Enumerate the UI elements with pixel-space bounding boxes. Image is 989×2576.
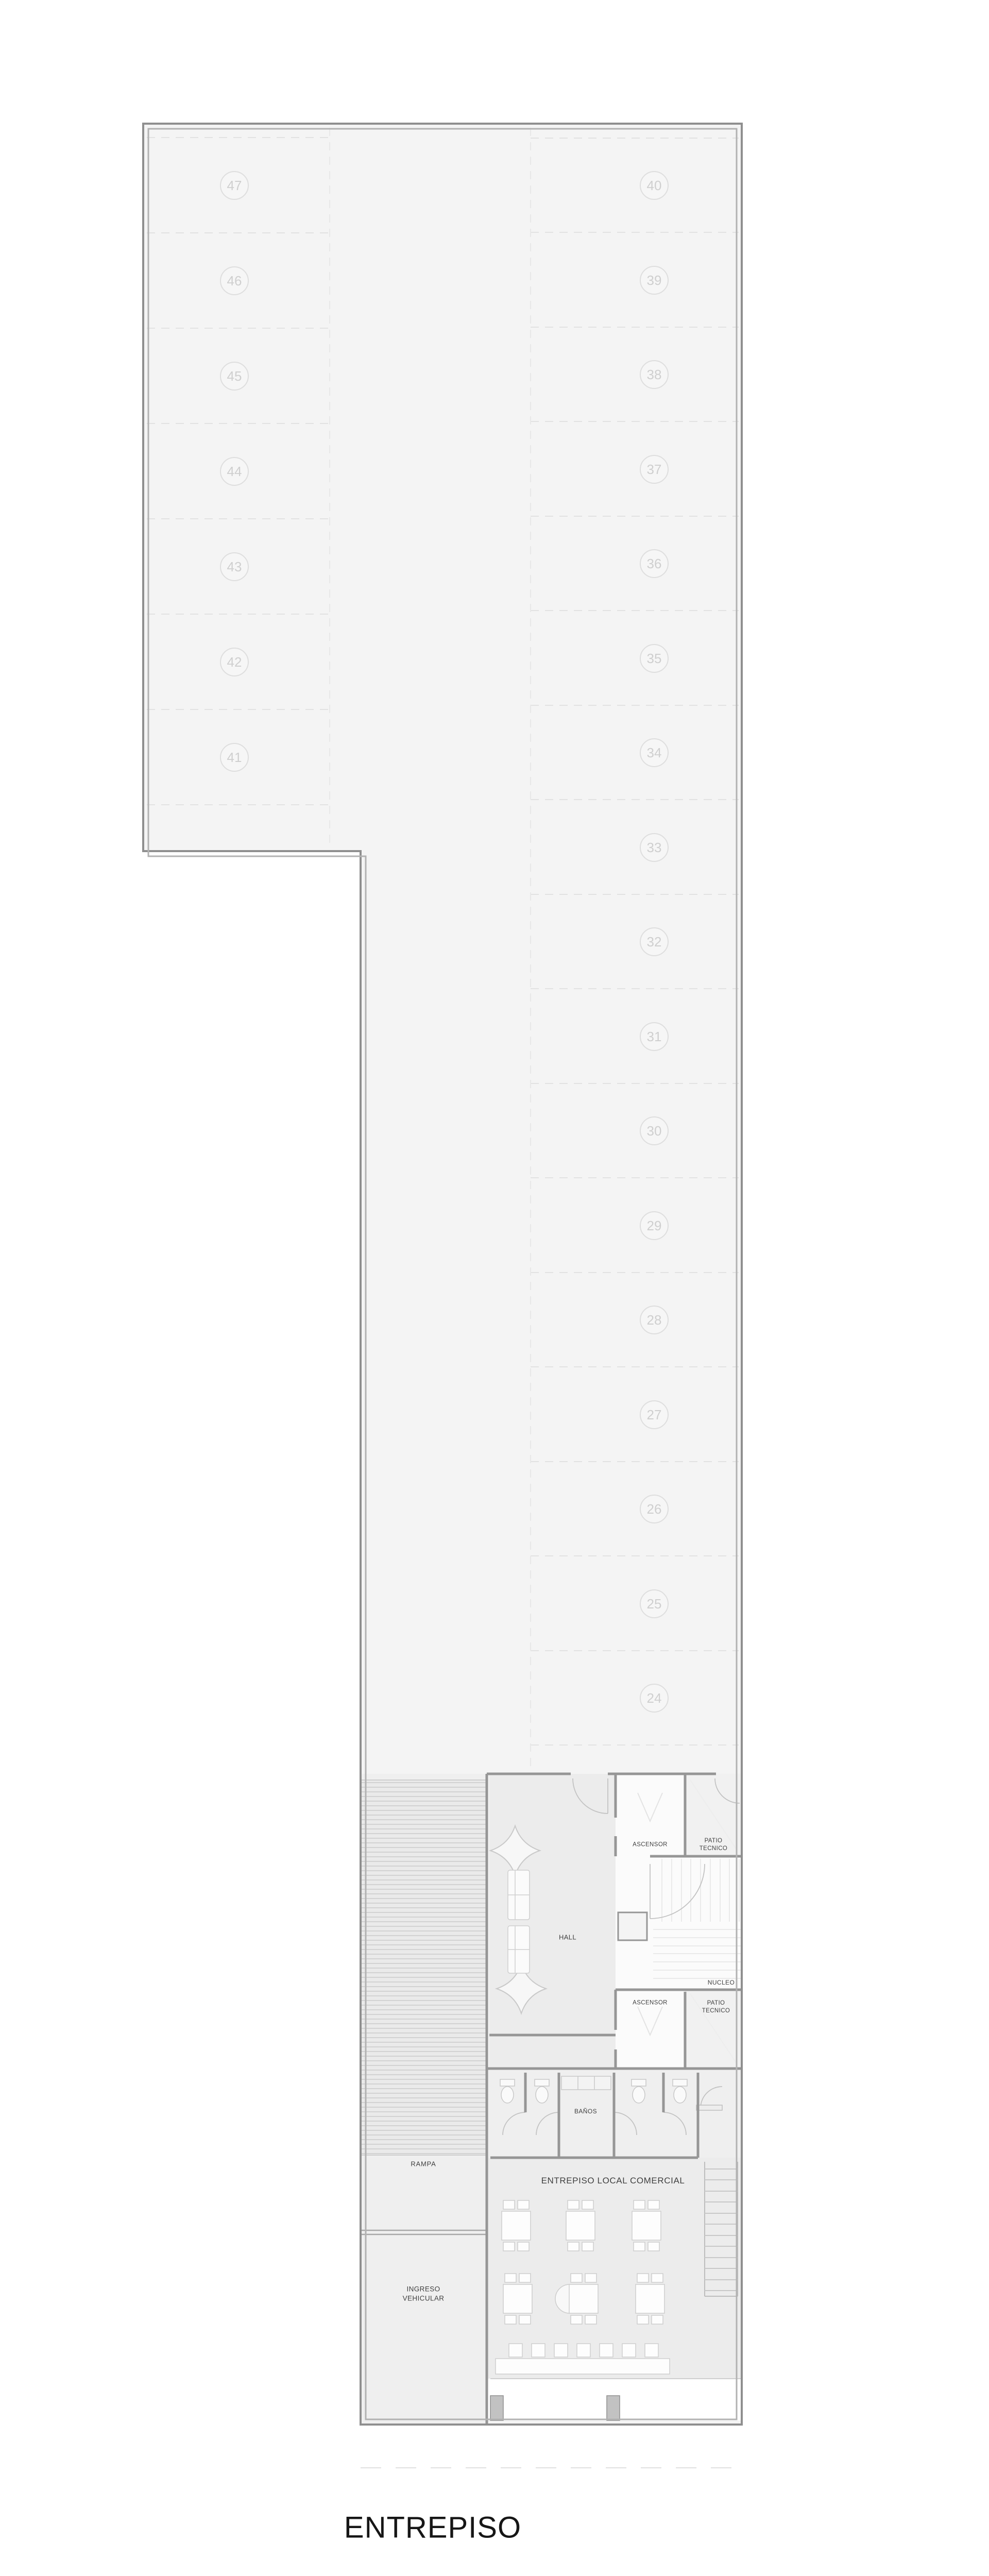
parking-space-number: 36 (640, 549, 669, 578)
room-label-patio-tecnico-lower: PATIO TECNICO (699, 1999, 733, 2015)
parking-space-number: 33 (640, 833, 669, 862)
parking-space-number: 47 (220, 171, 249, 200)
floor-plan-canvas: 4746454443424140393837363534333231302928… (0, 0, 989, 2576)
room-label-hall: HALL (559, 1934, 576, 1942)
parking-space-number: 25 (640, 1589, 669, 1618)
toilet-icon (673, 2079, 687, 2103)
parking-space-number: 45 (220, 362, 249, 391)
toilet-icon (500, 2079, 515, 2103)
room-label-ascensor-lower: ASCENSOR (633, 1999, 668, 2007)
room-label-banos: BAÑOS (574, 2108, 597, 2116)
room-label-local-comercial: ENTREPISO LOCAL COMERCIAL (541, 2175, 685, 2187)
parking-space-number: 44 (220, 457, 249, 486)
parking-space-number: 39 (640, 266, 669, 295)
parking-space-number: 27 (640, 1400, 669, 1429)
room-label-rampa: RAMPA (411, 2160, 436, 2169)
parking-space-number: 26 (640, 1495, 669, 1523)
parking-space-number: 42 (220, 648, 249, 676)
room-label-nucleo: NUCLEO (708, 1979, 735, 1987)
toilet-icon (632, 2079, 646, 2103)
room-label-patio-tecnico-upper: PATIO TECNICO (696, 1837, 730, 1853)
parking-space-number: 41 (220, 743, 249, 772)
parking-space-number: 28 (640, 1306, 669, 1334)
parking-space-number: 34 (640, 738, 669, 767)
room-label-ascensor-upper: ASCENSOR (633, 1841, 668, 1849)
toilet-icon (535, 2079, 549, 2103)
parking-space-number: 46 (220, 266, 249, 295)
parking-space-number: 32 (640, 927, 669, 956)
parking-space-number: 37 (640, 455, 669, 484)
parking-space-number: 30 (640, 1116, 669, 1145)
parking-space-number: 35 (640, 644, 669, 673)
parking-space-number: 40 (640, 171, 669, 200)
parking-space-number: 38 (640, 360, 669, 389)
room-label-ingreso-vehicular: INGRESO VEHICULAR (390, 2284, 457, 2302)
parking-space-number: 43 (220, 552, 249, 581)
sheet-title: ENTREPISO (344, 2511, 521, 2545)
parking-space-number: 29 (640, 1211, 669, 1240)
parking-space-number: 24 (640, 1684, 669, 1713)
parking-space-number: 31 (640, 1022, 669, 1051)
floor-plan-drawing (0, 0, 989, 2576)
